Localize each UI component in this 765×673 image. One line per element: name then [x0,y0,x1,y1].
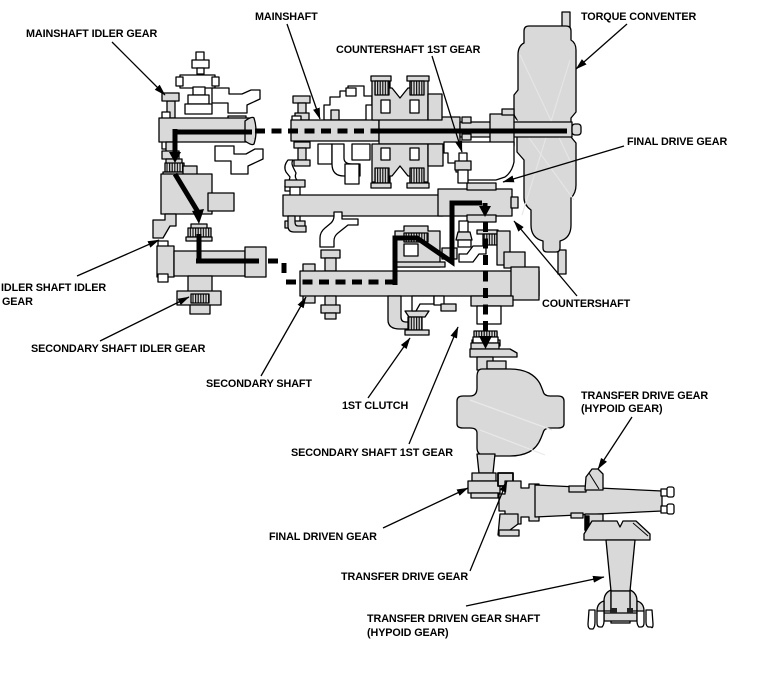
svg-text:TORQUE CONVENTER: TORQUE CONVENTER [581,11,696,23]
svg-text:(HYPOID GEAR): (HYPOID GEAR) [581,403,663,415]
svg-text:SECONDARY SHAFT IDLER GEAR: SECONDARY SHAFT IDLER GEAR [31,343,206,355]
svg-text:COUNTERSHAFT 1ST GEAR: COUNTERSHAFT 1ST GEAR [336,44,481,56]
svg-text:MAINSHAFT IDLER GEAR: MAINSHAFT IDLER GEAR [26,28,157,40]
svg-text:GEAR: GEAR [2,296,33,308]
svg-text:SECONDARY SHAFT 1ST GEAR: SECONDARY SHAFT 1ST GEAR [291,447,453,459]
svg-text:SECONDARY SHAFT: SECONDARY SHAFT [206,378,312,390]
svg-text:FINAL DRIVEN GEAR: FINAL DRIVEN GEAR [269,531,377,543]
svg-text:MAINSHAFT: MAINSHAFT [255,11,318,23]
svg-text:TRANSFER DRIVE GEAR: TRANSFER DRIVE GEAR [581,390,708,402]
svg-text:TRANSFER DRIVE GEAR: TRANSFER DRIVE GEAR [341,571,468,583]
svg-text:IDLER SHAFT IDLER: IDLER SHAFT IDLER [1,282,106,294]
svg-text:(HYPOID GEAR): (HYPOID GEAR) [367,627,449,639]
svg-text:FINAL DRIVE GEAR: FINAL DRIVE GEAR [627,136,727,148]
svg-text:1ST CLUTCH: 1ST CLUTCH [342,400,408,412]
svg-text:COUNTERSHAFT: COUNTERSHAFT [542,298,631,310]
svg-text:TRANSFER DRIVEN GEAR SHAFT: TRANSFER DRIVEN GEAR SHAFT [367,613,541,625]
